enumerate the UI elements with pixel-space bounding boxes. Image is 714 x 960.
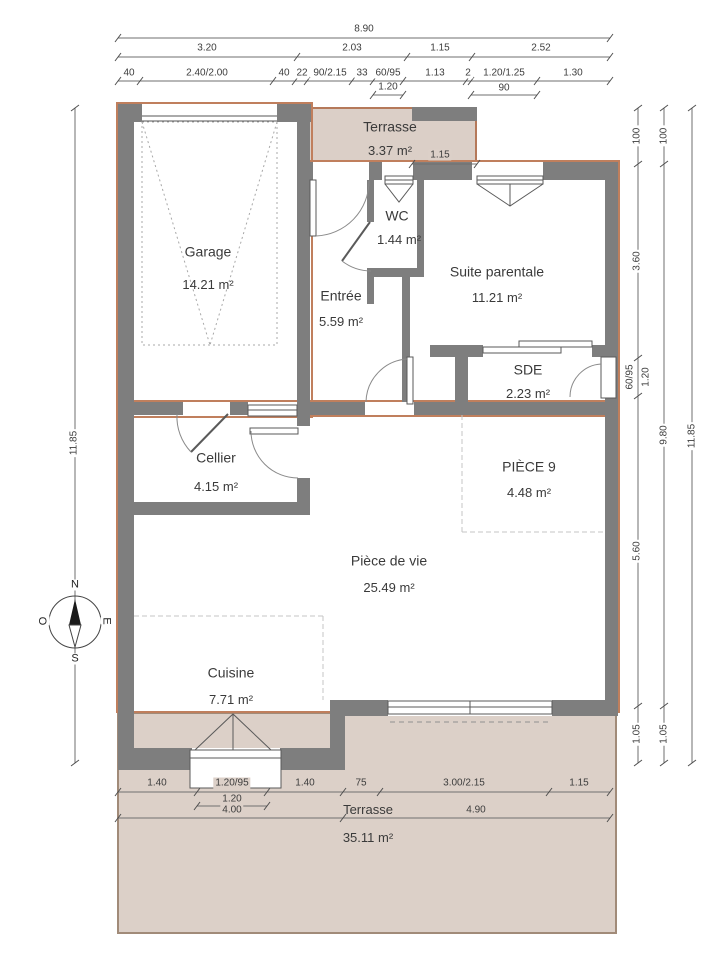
cellier-window-opening (248, 402, 297, 415)
room-area-cuisine: 7.71 m² (209, 693, 253, 707)
dim-bot-r1-1: 1.20/95 (213, 778, 250, 789)
dim-terrace-width: 1.15 (428, 150, 451, 161)
cellier-door-opening (183, 402, 230, 415)
dim-right-c1-0: 100 (632, 126, 643, 147)
wall-wc-bottom (367, 268, 424, 277)
dim-bot-r1-4: 3.00/2.15 (441, 778, 487, 789)
room-name-cuisine: Cuisine (208, 665, 255, 680)
dim-top-r3-10: 1.30 (561, 68, 584, 79)
sde-sliding-opening (483, 345, 592, 357)
room-area-cellier: 4.15 m² (194, 480, 238, 494)
dim-bot-r1-0: 1.40 (145, 778, 168, 789)
wall-wc-left-a (367, 180, 374, 222)
dim-top-r2-3: 2.52 (529, 43, 552, 54)
compass-east-label: E (101, 617, 112, 624)
dim-top-r4-1: 90 (496, 83, 511, 94)
compass-south-label: S (71, 654, 78, 665)
room-area-suite: 11.21 m² (472, 291, 522, 305)
compass-icon (49, 596, 101, 648)
dim-top-r3-1: 2.40/2.00 (184, 68, 230, 79)
room-name-piece9: PIÈCE 9 (502, 459, 556, 474)
room-name-suite: Suite parentale (450, 264, 544, 279)
wall-wc-right (417, 180, 424, 277)
dim-bot-r2: 1.20 (220, 794, 243, 805)
dim-top-r3-3: 22 (294, 68, 309, 79)
dim-right-c1-3: 1.20 (641, 365, 652, 388)
dim-top-r3-9: 1.20/1.25 (481, 68, 527, 79)
dim-bot-r1-2: 1.40 (293, 778, 316, 789)
cuisine-window-opening (192, 748, 280, 770)
room-name-sde: SDE (514, 362, 543, 377)
terrace-south-fill (117, 712, 617, 934)
dim-left-total: 11.85 (69, 429, 80, 457)
compass-west-label: O (39, 617, 50, 626)
wall-left (118, 104, 134, 770)
dim-right-c1-4: 5.60 (632, 539, 643, 562)
room-area-sde: 2.23 m² (506, 387, 550, 401)
wall-garage-right (297, 122, 310, 415)
room-name-entree: Entrée (320, 288, 361, 303)
dim-bot-r1-3: 75 (353, 778, 368, 789)
dim-top-r2-2: 1.15 (428, 43, 451, 54)
room-area-terrasse-nord: 3.37 m² (368, 144, 412, 158)
garage-door-opening (142, 104, 277, 122)
dim-right-c2-1: 9.80 (659, 423, 670, 446)
dim-top-r3-8: 2 (463, 68, 473, 79)
wall-cellier-bottom (131, 502, 310, 515)
compass-north-label: N (71, 580, 79, 591)
wall-entree-right (402, 277, 410, 402)
bay-window-opening (388, 700, 552, 716)
dim-top-r3-2: 40 (276, 68, 291, 79)
room-area-garage: 14.21 m² (182, 278, 233, 292)
room-area-piece9: 4.48 m² (507, 486, 551, 500)
dim-right-c1-5: 1.05 (632, 722, 643, 745)
room-name-terrasse-nord: Terrasse (363, 119, 417, 134)
room-area-wc: 1.44 m² (377, 233, 421, 247)
dim-top-r4-0: 1.20 (376, 82, 399, 93)
dim-right-c3: 11.85 (687, 422, 698, 450)
dim-top-r3-0: 40 (121, 68, 136, 79)
dim-right-c2-2: 1.05 (659, 722, 670, 745)
room-name-terrasse-sud: Terrasse (343, 803, 393, 817)
room-name-garage: Garage (185, 244, 232, 259)
dim-bot-r3-1: 4.90 (464, 805, 487, 816)
dim-top-r3-6: 60/95 (373, 68, 402, 79)
wall-notch-terrace (412, 107, 477, 121)
floor-plan: 8.90 3.20 2.03 1.15 2.52 40 2.40/2.00 40… (0, 0, 714, 960)
dim-top-total: 8.90 (352, 24, 375, 35)
dim-right-c2-0: 100 (659, 126, 670, 147)
room-name-piece-de-vie: Pièce de vie (351, 553, 427, 568)
room-area-entree: 5.59 m² (319, 315, 363, 329)
dim-top-r3-7: 1.13 (423, 68, 446, 79)
dim-top-r2-1: 2.03 (340, 43, 363, 54)
front-door-opening (313, 162, 369, 180)
room-area-terrasse-sud: 35.11 m² (343, 831, 393, 845)
envelope-outline-garage (116, 102, 313, 418)
dim-right-c1-2: 60/95 (625, 362, 636, 391)
room-name-cellier: Cellier (196, 450, 236, 465)
wall-right (605, 180, 618, 716)
dim-top-r2-0: 3.20 (195, 43, 218, 54)
entree-door-opening (365, 402, 414, 415)
dim-bot-r1-5: 1.15 (567, 778, 590, 789)
suite-window-opening (472, 162, 543, 180)
dim-top-r3-5: 33 (354, 68, 369, 79)
dim-bot-r3-0: 4.00 (220, 805, 243, 816)
wall-sde-left (455, 357, 468, 402)
dim-right-c1-1: 3.60 (632, 249, 643, 272)
room-name-wc: WC (385, 208, 408, 223)
cellier-right-door-opening (297, 426, 310, 478)
room-area-piece-de-vie: 25.49 m² (363, 581, 414, 595)
wc-window-opening (382, 162, 413, 180)
dim-top-r3-4: 90/2.15 (311, 68, 348, 79)
